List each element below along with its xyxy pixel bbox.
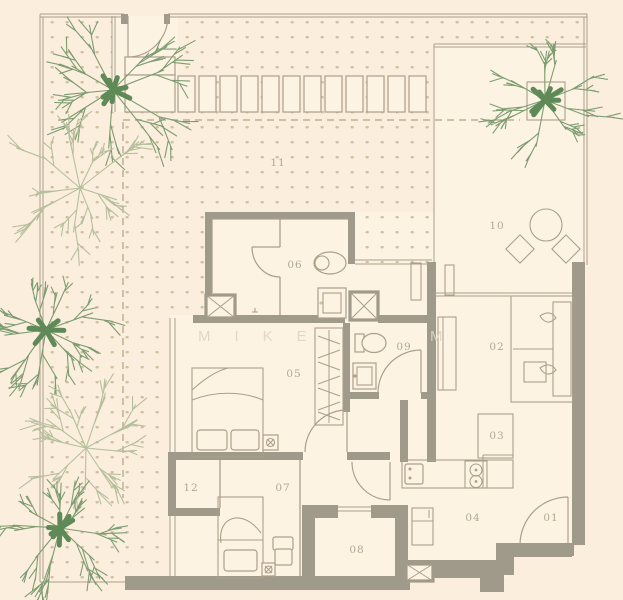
room-label: 01 [543, 512, 558, 524]
pergola-slat [304, 76, 321, 112]
pillow [197, 430, 227, 450]
pergola-slat [325, 76, 342, 112]
shaft-box [350, 292, 378, 320]
room-label: 03 [489, 430, 504, 442]
floor-plan: MIKE M 01 02 03 04 05 06 07 08 09 10 11 … [0, 0, 623, 600]
room-label: 06 [287, 259, 302, 271]
svg-text:MIKE: MIKE [198, 328, 331, 345]
pergola-slat [262, 76, 279, 112]
room-label: 10 [489, 220, 504, 232]
room-label: 02 [489, 341, 504, 353]
room-label: 09 [396, 341, 411, 353]
room-label: 12 [183, 482, 198, 494]
room-label: 05 [286, 368, 301, 380]
pergola-slat [367, 76, 384, 112]
bench [125, 75, 175, 112]
pergola-slat [220, 76, 237, 112]
toilet [314, 252, 346, 274]
toilet [362, 334, 386, 353]
pergola-slat [283, 76, 300, 112]
pillow [224, 550, 257, 571]
floor-plan-drawing: MIKE M 01 02 03 04 05 06 07 08 09 10 11 … [0, 0, 623, 600]
shaft-box [206, 295, 235, 318]
stool [273, 537, 293, 550]
pergola-slat [199, 76, 216, 112]
pergola-slat [346, 76, 363, 112]
room-label: 08 [349, 544, 364, 556]
pergola-slat [409, 76, 426, 112]
pergola-slat [388, 76, 405, 112]
room-label: 11 [270, 157, 285, 169]
floor-drain [263, 435, 278, 450]
room-label: 07 [275, 482, 290, 494]
pergola-slat [241, 76, 258, 112]
stool [275, 549, 292, 565]
svg-text:M: M [430, 328, 467, 345]
shaft-box [406, 564, 433, 581]
floor-drain [262, 563, 275, 576]
kitchen-sink [405, 464, 423, 484]
room-label: 04 [465, 512, 480, 524]
pillow [231, 430, 259, 450]
